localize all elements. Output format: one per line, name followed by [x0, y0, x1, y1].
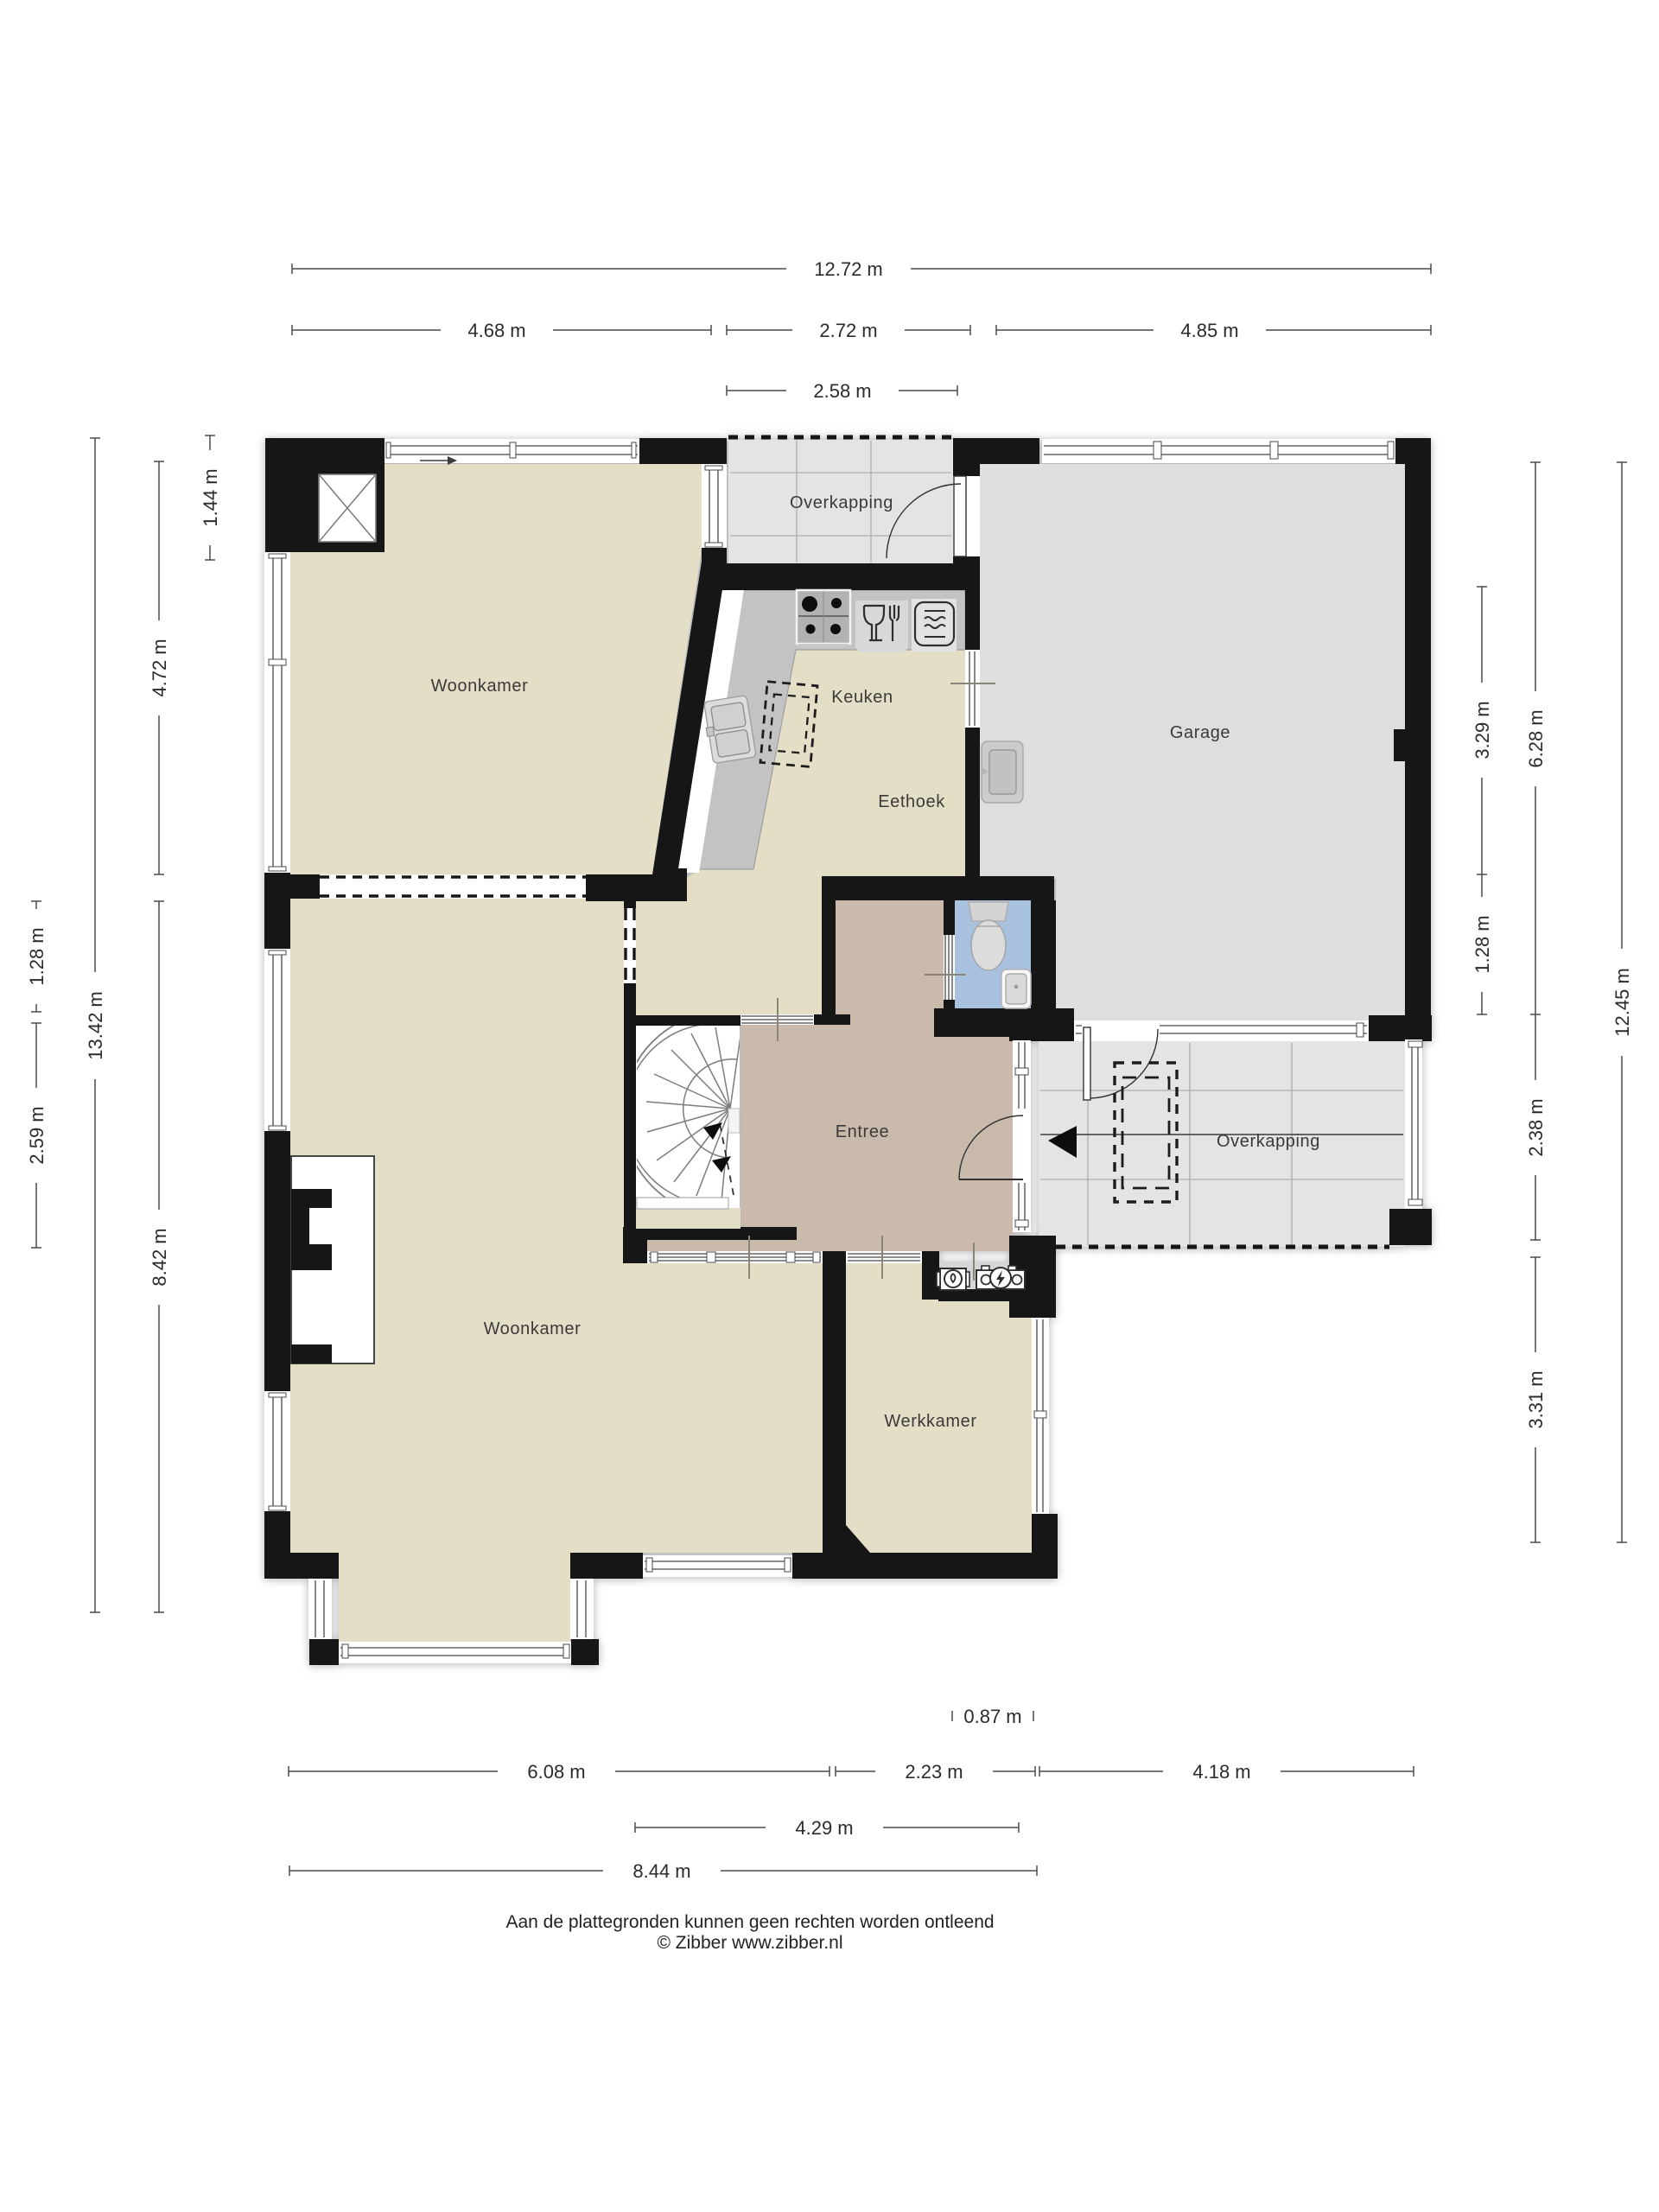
svg-text:2.23 m: 2.23 m [905, 1761, 963, 1783]
svg-text:2.38 m: 2.38 m [1525, 1098, 1547, 1156]
svg-text:Aan de plattegronden kunnen ge: Aan de plattegronden kunnen geen rechten… [505, 1912, 994, 1932]
svg-text:6.08 m: 6.08 m [527, 1761, 585, 1783]
svg-text:Entree: Entree [836, 1122, 890, 1141]
svg-text:Overkapping: Overkapping [1217, 1132, 1320, 1151]
svg-text:1.28 m: 1.28 m [1471, 915, 1493, 973]
svg-text:3.31 m: 3.31 m [1525, 1370, 1547, 1428]
svg-text:4.29 m: 4.29 m [795, 1817, 853, 1839]
svg-text:12.45 m: 12.45 m [1611, 968, 1633, 1037]
svg-text:3.29 m: 3.29 m [1471, 701, 1493, 759]
svg-text:12.72 m: 12.72 m [814, 258, 883, 280]
svg-text:© Zibber www.zibber.nl: © Zibber www.zibber.nl [657, 1933, 842, 1953]
svg-text:4.18 m: 4.18 m [1192, 1761, 1250, 1783]
svg-text:2.59 m: 2.59 m [26, 1106, 48, 1164]
svg-text:Woonkamer: Woonkamer [431, 677, 529, 696]
svg-text:Overkapping: Overkapping [790, 493, 893, 512]
svg-text:4.68 m: 4.68 m [467, 320, 525, 341]
svg-text:4.85 m: 4.85 m [1180, 320, 1238, 341]
svg-text:2.58 m: 2.58 m [813, 380, 871, 402]
svg-text:4.72 m: 4.72 m [149, 639, 170, 696]
svg-text:6.28 m: 6.28 m [1525, 709, 1547, 767]
svg-text:2.72 m: 2.72 m [819, 320, 877, 341]
svg-text:Woonkamer: Woonkamer [484, 1319, 582, 1338]
svg-text:13.42 m: 13.42 m [85, 991, 106, 1060]
svg-text:1.44 m: 1.44 m [200, 468, 221, 526]
svg-text:Eethoek: Eethoek [878, 792, 945, 811]
svg-text:1.28 m: 1.28 m [26, 927, 48, 985]
svg-text:8.42 m: 8.42 m [149, 1228, 170, 1286]
svg-text:Keuken: Keuken [831, 688, 893, 707]
svg-text:0.87 m: 0.87 m [963, 1706, 1021, 1727]
svg-text:8.44 m: 8.44 m [632, 1860, 690, 1882]
svg-text:Garage: Garage [1170, 723, 1230, 742]
svg-text:Werkkamer: Werkkamer [884, 1412, 976, 1431]
